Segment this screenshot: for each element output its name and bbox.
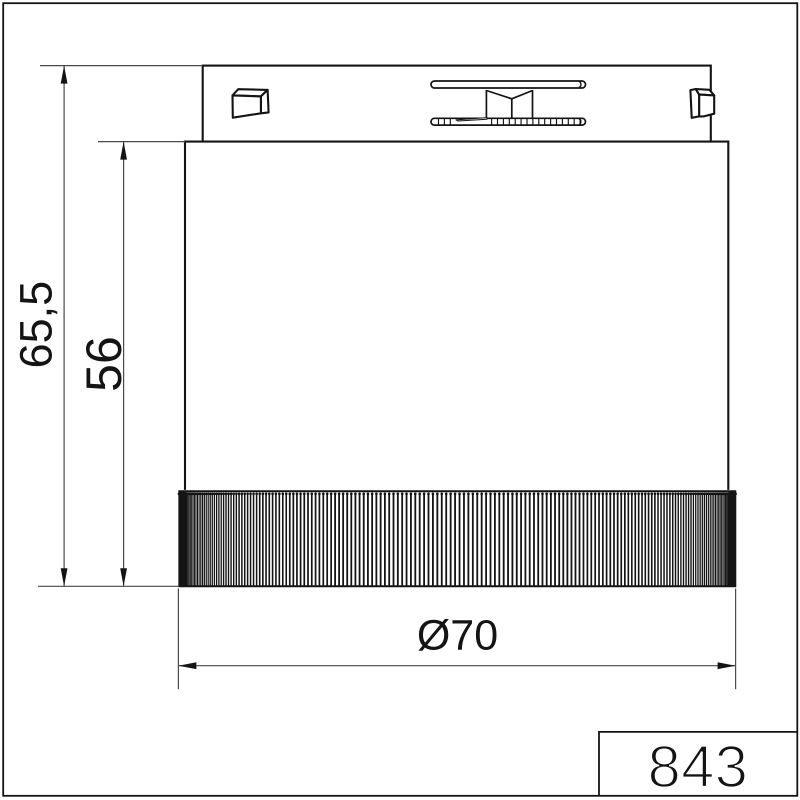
- svg-text:56: 56: [76, 336, 132, 392]
- svg-text:Ø70: Ø70: [417, 612, 498, 660]
- svg-text:843: 843: [648, 733, 749, 800]
- svg-text:65,5: 65,5: [11, 281, 62, 369]
